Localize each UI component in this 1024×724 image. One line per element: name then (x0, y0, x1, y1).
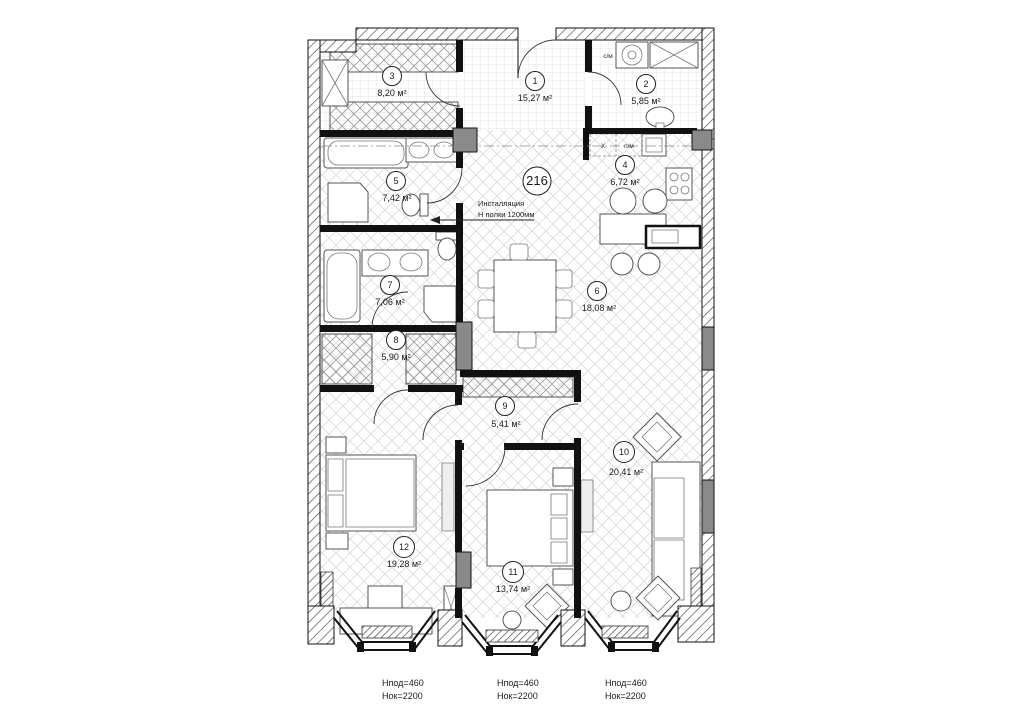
shower-icon (424, 286, 456, 322)
installation-note-line2: Н полки 1200мм (478, 210, 535, 219)
nightstand (553, 569, 573, 585)
window-note-1-line1: Нпод=460 (382, 678, 424, 688)
dresser (442, 463, 454, 531)
room-10-number: 10 (619, 447, 629, 457)
room-11-area: 13,74 м² (496, 584, 530, 594)
installation-note-line1: Инсталляция (478, 199, 524, 208)
room-10-area: 20,41 м² (609, 467, 643, 477)
room-5-area: 7,42 м² (382, 193, 411, 203)
pier (308, 606, 334, 644)
window-note-3-line1: Нпод=460 (605, 678, 647, 688)
room-1-area: 15,27 м² (518, 93, 552, 103)
room-9-area: 5,41 м² (491, 419, 520, 429)
window-note-2-line2: Нок=2200 (497, 691, 538, 701)
window-note-2-line1: Нпод=460 (497, 678, 539, 688)
dishwasher-label: п/м (624, 143, 634, 150)
room-3-area: 8,20 м² (377, 88, 406, 98)
room-9-number: 9 (502, 401, 507, 411)
stove-icon (666, 168, 692, 200)
room-8-number: 8 (393, 335, 398, 345)
room-7-number: 7 (387, 280, 392, 290)
stool-icon (610, 188, 636, 214)
pouf-icon (611, 253, 633, 275)
pier (561, 610, 585, 646)
radiator-icon (486, 630, 538, 642)
room-8-area: 5,90 м² (381, 352, 410, 362)
window-note-3-line2: Нок=2200 (605, 691, 646, 701)
pouf-icon (638, 253, 660, 275)
radiator-icon (691, 568, 701, 612)
window-note-1-line2: Нок=2200 (382, 691, 423, 701)
room-4-area: 6,72 м² (610, 177, 639, 187)
room-1-number: 1 (532, 76, 537, 86)
side-table-icon (611, 591, 631, 611)
room-7-area: 7,06 м² (375, 297, 404, 307)
room-2-number: 2 (643, 79, 648, 89)
wardrobe-room9 (463, 377, 573, 397)
room-11-number: 11 (508, 567, 517, 577)
tv-cabinet (581, 480, 593, 532)
shower-icon (328, 183, 368, 222)
room-12-number: 12 (399, 542, 409, 552)
monitor-icon (368, 586, 402, 608)
dining-table (494, 260, 556, 332)
room-6-number: 6 (594, 286, 599, 296)
room-4-number: 4 (622, 160, 627, 170)
pier (678, 606, 714, 642)
stool-icon (643, 189, 667, 213)
room-2-area: 5,85 м² (631, 96, 660, 106)
radiator-icon (362, 626, 412, 638)
washer-label: с/м (603, 53, 613, 60)
floor-room-1 (463, 40, 585, 132)
apartment-number: 216 (526, 173, 548, 188)
fridge-label: Х (601, 143, 606, 150)
side-table-icon (503, 611, 521, 629)
room-6-area: 18,08 м² (582, 303, 616, 313)
room-3-number: 3 (389, 71, 394, 81)
room-12-area: 19,28 м² (387, 559, 421, 569)
floor-plan: 1 15,27 м² 2 5,85 м² 3 8,20 м² 4 6,72 м²… (0, 0, 1024, 724)
nightstand (553, 468, 573, 486)
radiator-icon (602, 626, 648, 638)
nightstand (326, 533, 348, 549)
nightstand (326, 437, 346, 453)
room-5-number: 5 (393, 176, 398, 186)
